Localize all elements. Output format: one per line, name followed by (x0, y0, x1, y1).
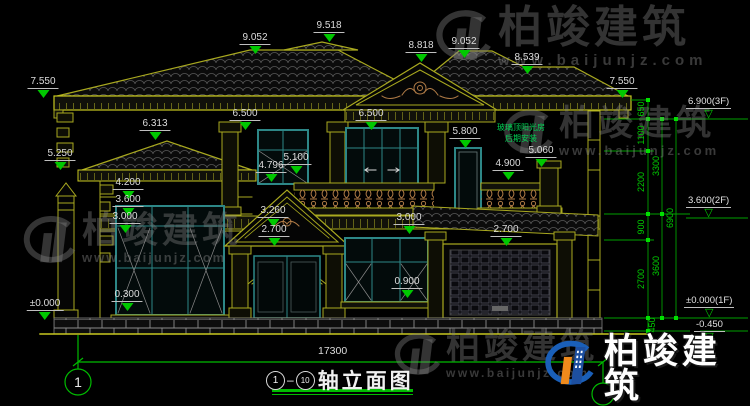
storey-level-2f: 3.600(2F)▽ (686, 196, 731, 217)
baijun-logo-color-icon (538, 334, 600, 402)
sunroom-note-line1: 玻璃顶阳光房 (497, 123, 545, 132)
chain-dim: 450 (647, 317, 657, 332)
storey-level-3f: 6.900(3F)▽ (686, 97, 731, 118)
elevation-label: ±0.000 (27, 298, 64, 320)
chain-dim: 6900 (665, 208, 675, 228)
elevation-label: 6.500 (229, 108, 260, 130)
chain-dim: 2200 (636, 172, 646, 192)
total-width-dimension: 17300 (318, 345, 347, 357)
chain-dim: 3600 (651, 256, 661, 276)
brand-name: 柏竣建筑 (604, 334, 750, 404)
elevation-label: 2.700 (490, 224, 521, 246)
elevation-label: 4.796 (255, 160, 286, 182)
elevation-label: 9.518 (313, 20, 344, 42)
chain-dim: 650 (636, 101, 646, 116)
axis-from-circle: 1 (266, 371, 285, 390)
garage-handle (492, 306, 508, 311)
elevation-label: 5.800 (449, 126, 480, 148)
axis-to-circle: 10 (296, 371, 315, 390)
elevation-label: 6.500 (355, 108, 386, 130)
elevation-label: 4.900 (492, 158, 523, 180)
balcony-door (346, 128, 418, 187)
elevation-label: 8.818 (405, 40, 436, 62)
chain-dim: 2700 (636, 269, 646, 289)
elevation-label: 5.060 (525, 145, 556, 167)
title-dash: – (287, 373, 294, 387)
elevation-label: 5.250 (44, 148, 75, 170)
drawing-title-text: 轴立面图 (318, 365, 414, 395)
elevation-label: 3.000 (393, 212, 424, 234)
sunroom-note-line2: 后期安装 (505, 134, 537, 143)
hollow-triangle-icon: ▽ (705, 308, 713, 317)
hollow-triangle-icon: ▽ (704, 109, 712, 118)
garage-shutter (450, 250, 550, 315)
elevation-label: 2.700 (258, 224, 289, 246)
storey-level-1f: ±0.000(1F)▽ (684, 296, 734, 317)
cad-elevation-canvas: 柏竣建筑 www.baijunjz.com 柏竣建筑 www.baijunjz.… (0, 0, 750, 406)
chain-dim: 1100 (636, 125, 646, 144)
elevation-label: 0.300 (111, 289, 142, 311)
axis-bubble-number: 1 (74, 374, 82, 390)
elevation-label: 3.000 (109, 211, 140, 233)
hollow-triangle-icon: ▽ (704, 208, 712, 217)
elevation-label: 7.550 (606, 76, 637, 98)
drawing-title: 1 – 10 轴立面图 (266, 365, 414, 395)
elevation-label: 8.539 (511, 52, 542, 74)
chain-dim: 3300 (651, 156, 661, 176)
plinth (40, 318, 648, 334)
elevation-label: 6.313 (139, 118, 170, 140)
eave-cornice (54, 96, 631, 118)
sunroom-door (455, 148, 481, 213)
elevation-label: 9.052 (448, 36, 479, 58)
elevation-label: 7.550 (27, 76, 58, 98)
baijun-brand-logo: 柏竣建筑 www.baijunjz.com (538, 334, 750, 406)
elevation-label: 0.900 (391, 276, 422, 298)
elevation-label: 9.052 (239, 32, 270, 54)
entrance-door (254, 256, 320, 318)
chain-dim: 900 (636, 219, 646, 234)
